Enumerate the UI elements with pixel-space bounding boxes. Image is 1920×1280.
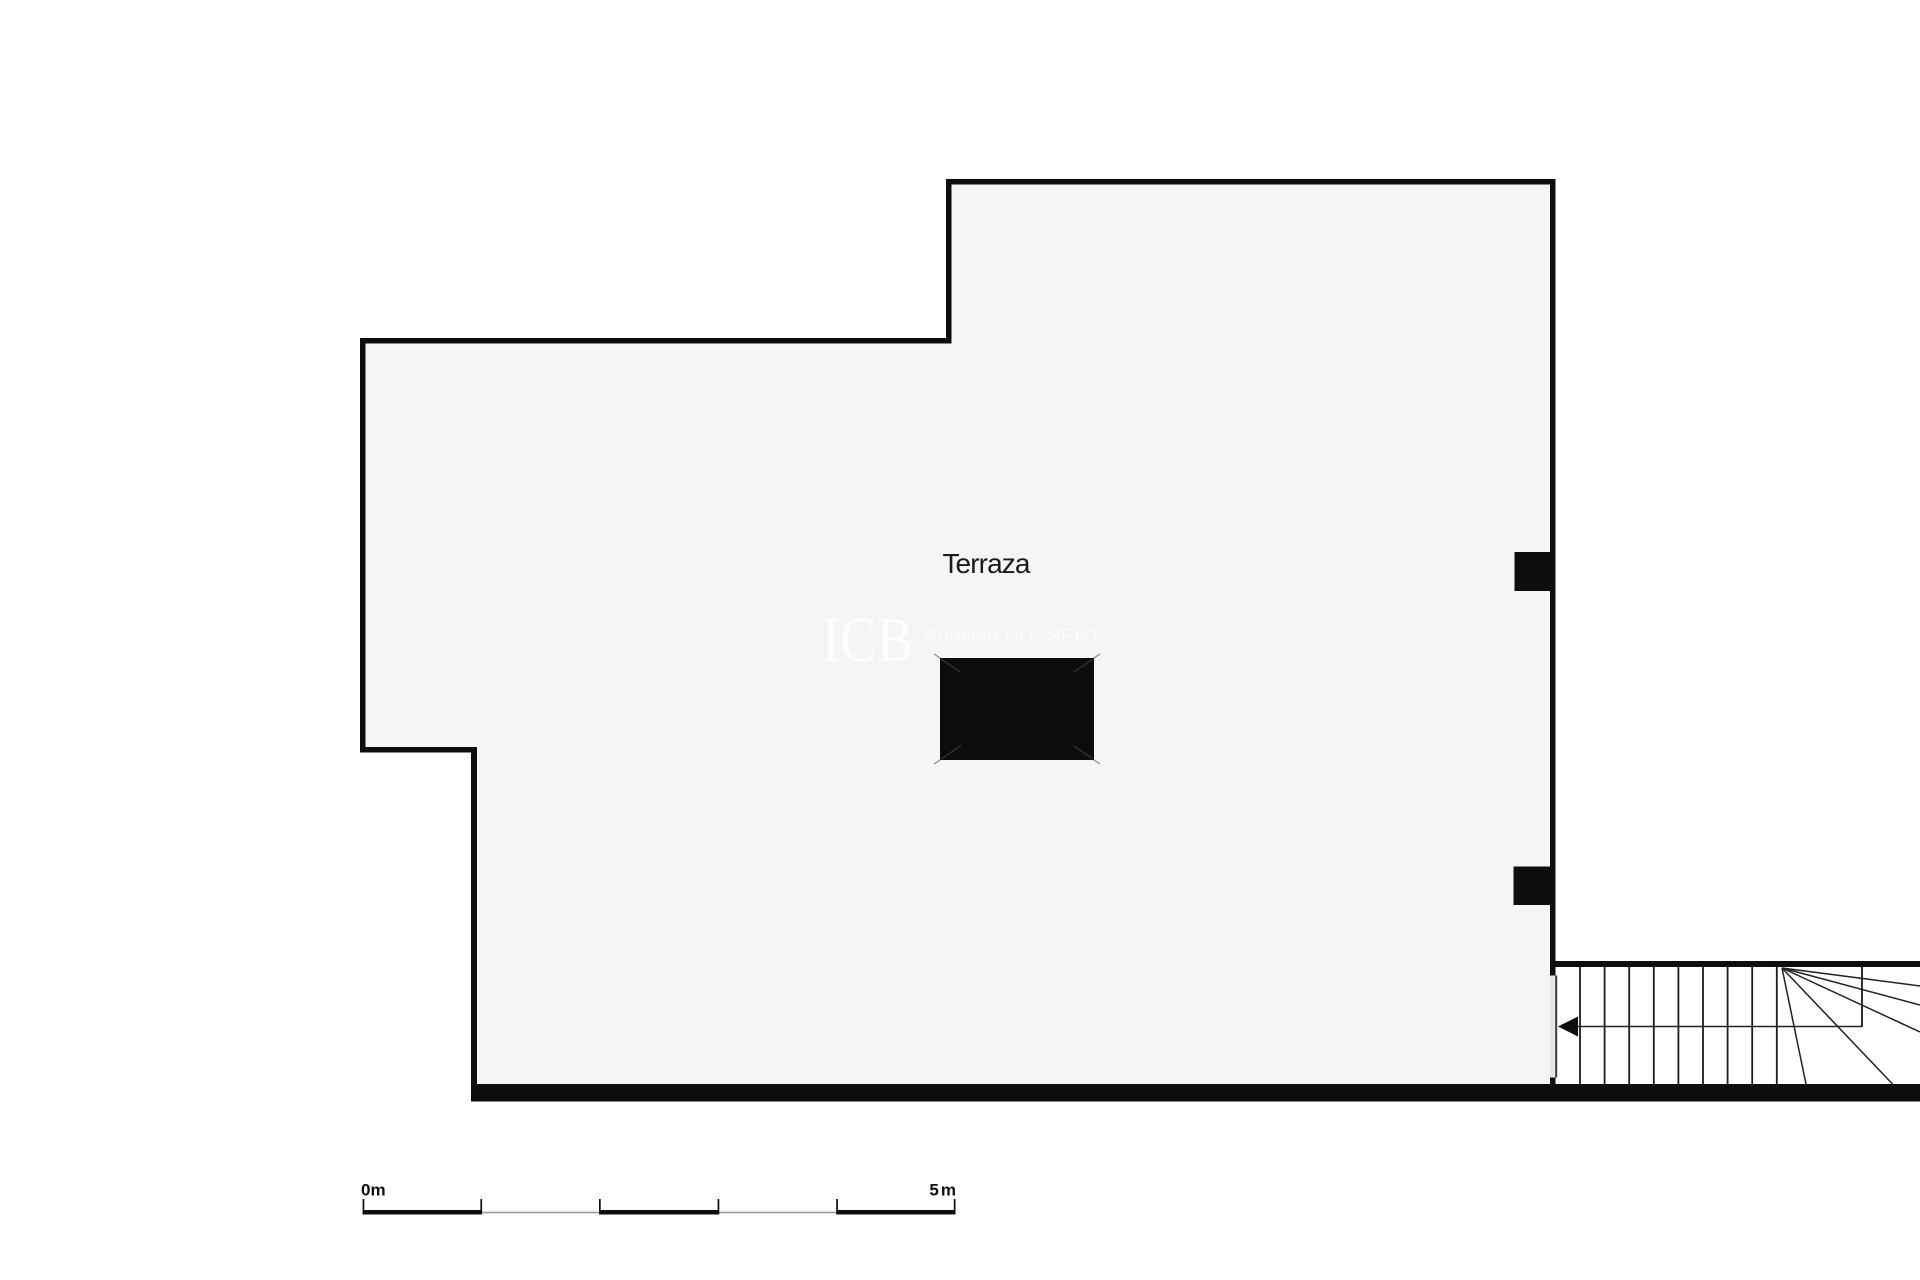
svg-text:5m: 5m bbox=[929, 1181, 958, 1200]
svg-text:0m: 0m bbox=[361, 1181, 386, 1200]
svg-text:Terraza: Terraza bbox=[942, 548, 1030, 579]
svg-text:ICB: ICB bbox=[822, 604, 913, 675]
svg-text:EMPRESA DE CONSTRUCCIONES: EMPRESA DE CONSTRUCCIONES bbox=[921, 645, 1096, 655]
